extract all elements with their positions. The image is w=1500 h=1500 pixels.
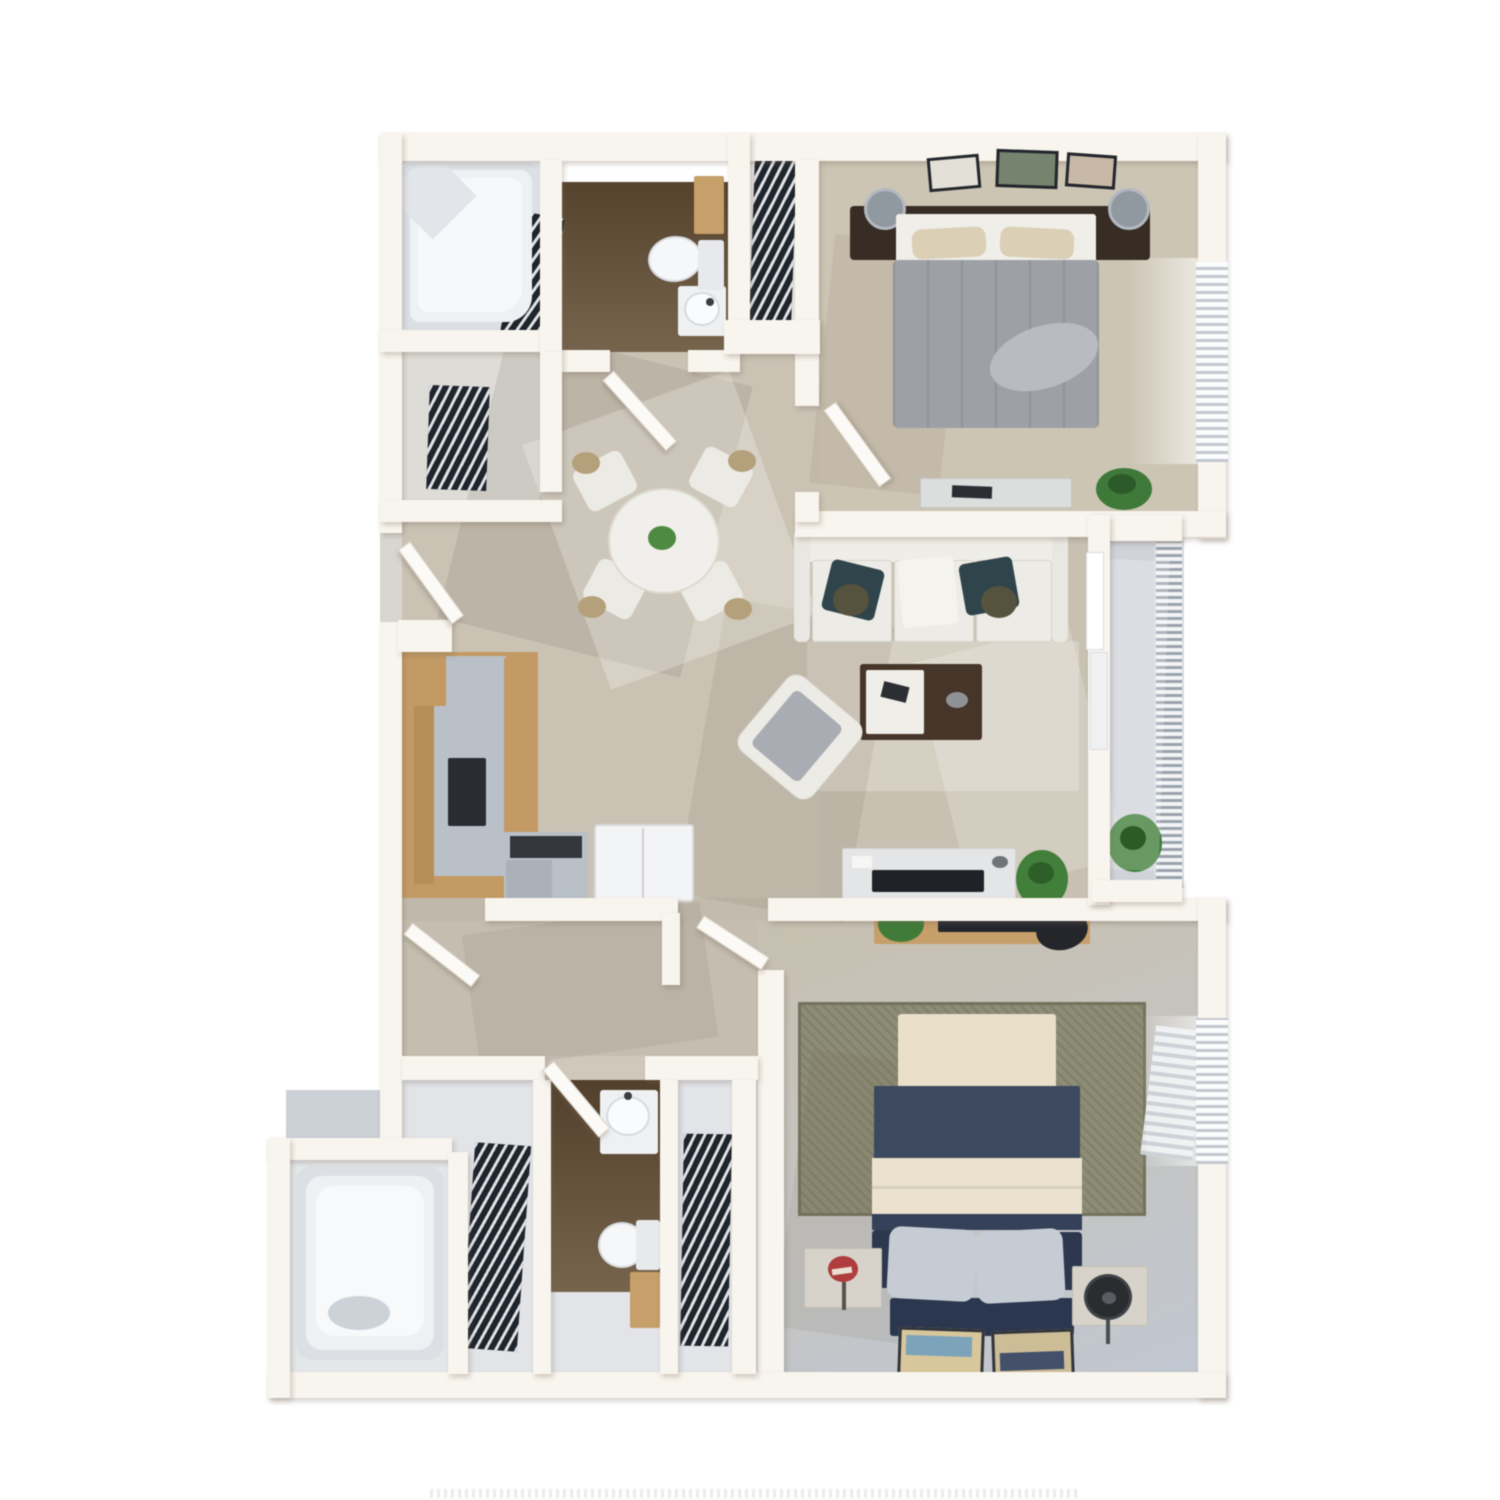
wall-kitchen-top-stub — [398, 620, 452, 652]
wall-art-frame-2 — [995, 149, 1058, 189]
bed-1-pillow-left — [911, 226, 986, 260]
tv-flatscreen — [872, 870, 984, 892]
nightstand-lamp-right — [1108, 188, 1150, 230]
wall-art-frame-1 — [927, 154, 982, 192]
table-fan-stem — [1106, 1320, 1110, 1344]
kitchen-top-counter-face — [504, 658, 530, 708]
wall-bath-2-left — [533, 1080, 551, 1374]
kitchen-counter-wood-face — [414, 706, 434, 884]
wall-tub-1-divider — [540, 160, 562, 352]
sink-2-faucet — [624, 1092, 632, 1100]
sink-1-basin — [684, 292, 720, 326]
table-fan-hub — [1102, 1292, 1116, 1304]
throw-pillow-olive-left — [833, 584, 869, 616]
closet-rod-b — [749, 155, 797, 328]
entry-threshold-floor — [380, 533, 402, 622]
wall-top-suite-below-tub — [380, 330, 562, 352]
sink-2-basin — [606, 1096, 650, 1136]
wall-closet-c-bottom — [380, 500, 562, 522]
sofa-throw-blanket — [897, 556, 959, 629]
wall-bedroom-2-left — [758, 970, 784, 1390]
bedroom-1-dresser — [920, 478, 1072, 508]
toilet-1-tank — [698, 240, 724, 290]
dining-centerpiece-plant — [648, 526, 676, 550]
dining-chair-cushion-nw — [572, 452, 600, 474]
wall-bumpout-top — [268, 1138, 452, 1160]
wall-bedroom-1-left-upper — [795, 160, 819, 406]
bed-1-pillow-right — [999, 226, 1074, 260]
window-bedroom-1 — [1196, 262, 1228, 462]
balcony-sliding-door-panel-1 — [1086, 552, 1104, 650]
closet-rod-bath-2-right — [680, 1134, 732, 1347]
wall-closet-c-right — [540, 352, 562, 492]
window-bedroom-2 — [1196, 1018, 1228, 1164]
leaning-art-left-sky — [906, 1335, 973, 1357]
leaning-art-right-skyline — [1000, 1351, 1065, 1371]
plant-bedroom-1-core — [1108, 474, 1136, 494]
balcony-plant-core — [1120, 826, 1146, 850]
floor-plan-3d-render — [0, 0, 1500, 1500]
bath-2-cabinet — [630, 1272, 660, 1328]
plant-living-room-core — [1028, 862, 1054, 884]
cropped-caption-text — [430, 1489, 1080, 1498]
bed-2-head-cushion — [898, 1014, 1056, 1088]
wall-tub-2-divider — [448, 1152, 468, 1374]
bed-2-band-seam — [872, 1186, 1082, 1189]
refrigerator-seam — [642, 828, 644, 898]
wall-bath-suite-2-top-left — [402, 1056, 545, 1080]
wall-hall-stub — [662, 913, 680, 985]
wall-closet-b-bottom — [724, 320, 820, 354]
kitchen-pass-floor — [402, 898, 485, 921]
console-decor-bowl — [992, 856, 1008, 868]
dresser-decor — [952, 485, 992, 498]
sink-1-faucet — [706, 298, 714, 306]
closet-rod-c — [426, 385, 490, 491]
console-decor-white — [852, 856, 872, 868]
sofa-armrest-right — [1052, 530, 1068, 642]
coffee-table-dish — [946, 692, 968, 708]
refrigerator — [594, 824, 694, 902]
wall-bath-1-divider — [728, 133, 750, 332]
wall-closet-2-right — [732, 1080, 756, 1374]
balcony-sliding-door-panel-2 — [1090, 652, 1108, 750]
bed-2-pillow-left — [886, 1226, 978, 1303]
toilet-2-tank — [636, 1220, 660, 1270]
sofa-armrest-left — [794, 530, 810, 642]
bathtub-2-seat — [328, 1296, 390, 1330]
wall-art-frame-3 — [1065, 152, 1117, 189]
wall-left-lower — [380, 622, 402, 1152]
dining-chair-cushion-ne — [728, 450, 756, 472]
wall-bottom — [268, 1372, 1226, 1398]
bed-2-pillow-right — [974, 1228, 1066, 1305]
dining-chair-cushion-se — [724, 598, 752, 620]
coffee-table-tray — [866, 670, 924, 734]
kitchen-top-counter — [446, 656, 506, 708]
wall-top-suite-door-left — [562, 350, 610, 372]
wall-bath-suite-2-top-right — [645, 1056, 758, 1080]
kitchen-dishwasher — [510, 836, 582, 858]
kitchen-cooktop — [448, 758, 486, 826]
wall-bumpout-left — [268, 1138, 290, 1398]
wall-balcony-bottom — [1092, 880, 1182, 902]
window-glow-bedroom-1 — [1128, 258, 1198, 464]
wall-bath-2-right — [660, 1080, 678, 1374]
bath-1-cabinet — [694, 176, 724, 234]
wall-mid-left — [485, 898, 678, 921]
dining-chair-cushion-sw — [578, 596, 606, 618]
wall-bedroom-1-left-lower — [795, 492, 819, 522]
lamp-red-stem — [842, 1282, 846, 1310]
bed-2-duvet-navy — [874, 1086, 1080, 1160]
throw-pillow-olive-right — [981, 586, 1017, 618]
